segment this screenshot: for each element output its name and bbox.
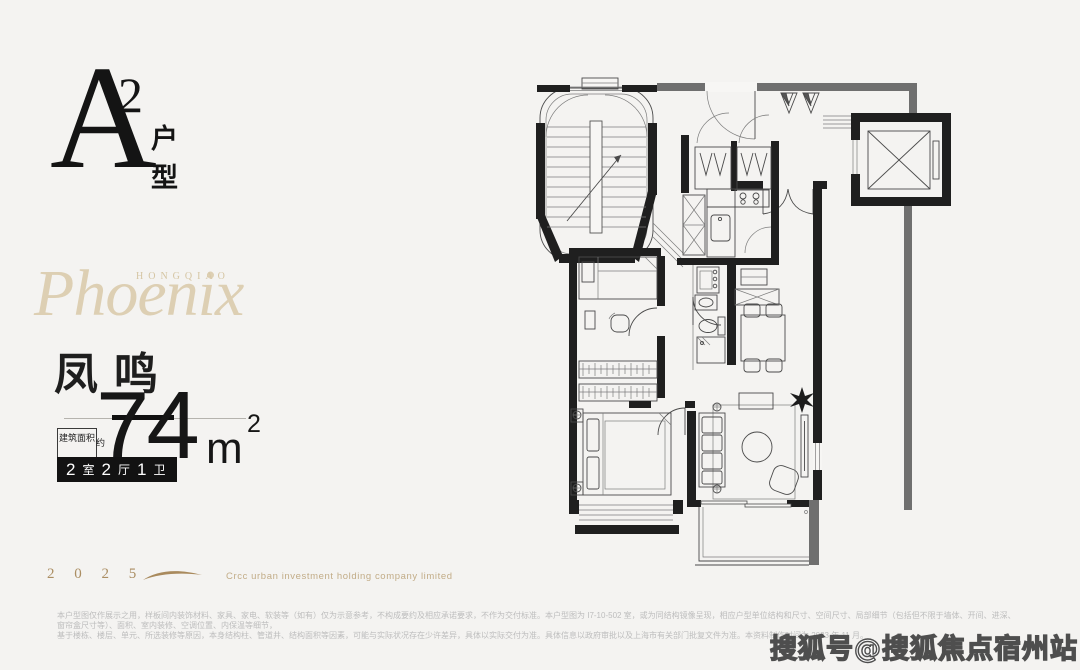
master-bedroom <box>569 401 696 534</box>
stove-icon <box>735 190 769 207</box>
area-unit: m <box>206 424 243 474</box>
footer-year: 2 0 2 5 <box>47 566 144 583</box>
bath-sink-icon <box>695 295 717 310</box>
living-room <box>687 387 814 507</box>
badge-livingrooms-count: 2 <box>101 461 110 478</box>
unit-superscript: 2 <box>118 66 143 124</box>
floor-plan <box>525 75 965 575</box>
badge-livingrooms-label: 厅 <box>118 464 130 476</box>
stairwell <box>536 78 683 267</box>
sofa-icon <box>699 413 725 487</box>
balcony <box>695 500 819 565</box>
desk-chair-icon <box>585 311 629 332</box>
toilet-icon <box>699 317 725 335</box>
elevator-shaft <box>851 113 951 206</box>
unit-type-label: 户型 <box>143 124 182 202</box>
area-unit-superscript: 2 <box>247 410 261 439</box>
kitchen <box>677 189 779 265</box>
shower-icon <box>697 337 725 363</box>
counter <box>707 189 769 207</box>
watermark: 搜狐号@搜狐焦点宿州站 <box>770 627 1078 666</box>
unit-right-wall <box>813 189 822 500</box>
bay-window <box>569 500 683 534</box>
sideboard <box>739 393 773 409</box>
coffee-table-icon <box>742 432 772 462</box>
kitchen-sink-icon <box>711 215 730 241</box>
area-note-box: 建筑面积 <box>57 428 97 460</box>
brand-name: Phoenix <box>34 256 243 332</box>
tv-icon <box>801 415 808 477</box>
washer-icon <box>697 267 719 293</box>
armchair-icon <box>767 463 800 496</box>
badge-bathrooms-count: 1 <box>137 461 146 478</box>
floor-lamp-icon <box>713 403 721 493</box>
refrigerator-icon <box>683 195 705 255</box>
rooms-badge: 2 室 2 厅 1 卫 <box>57 457 177 482</box>
single-bed-icon <box>579 257 657 299</box>
badge-bedrooms-count: 2 <box>66 461 75 478</box>
crossed-cabinet <box>735 289 779 305</box>
sliding-door <box>701 501 791 507</box>
badge-bathrooms-label: 卫 <box>153 464 165 476</box>
swoosh-icon <box>142 568 204 582</box>
double-bed-icon <box>583 413 671 495</box>
badge-bedrooms-label: 室 <box>82 464 94 476</box>
kitchen-door-arc <box>745 227 771 253</box>
dining-area <box>735 269 785 372</box>
bedroom-door-arc <box>629 308 657 336</box>
walk-in-closet <box>579 358 665 401</box>
plant-star-icon <box>790 387 814 413</box>
shaft-triangles-icon <box>781 93 819 113</box>
footer-company: Crcc urban investment holding company li… <box>226 571 453 582</box>
dining-chairs-icon <box>744 304 782 372</box>
dining-table-icon <box>741 315 785 361</box>
